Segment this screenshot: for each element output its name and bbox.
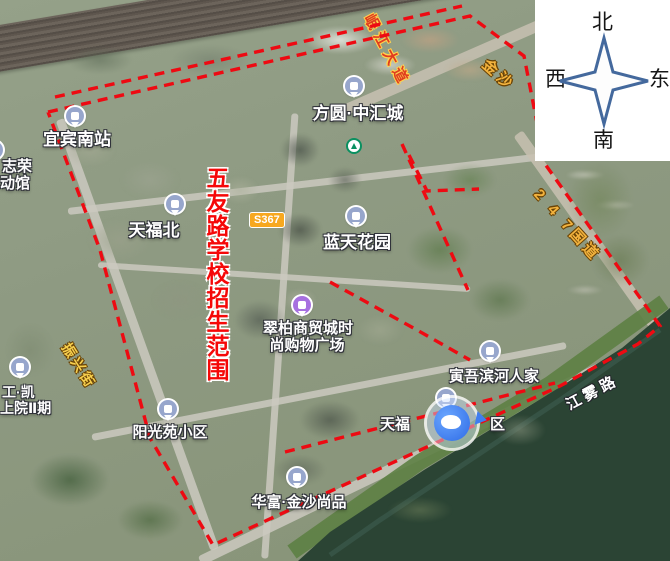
tianfubei-pin[interactable] (166, 195, 184, 213)
enrollment-zone-map: 宜宾南站 志荣 动馆 方圆·中汇城 天福北 S367 蓝天花园 翠柏商贸城时 尚… (0, 0, 670, 561)
compass: 北 南 西 东 (535, 0, 670, 161)
enrollment-boundary-line (409, 155, 479, 191)
poi-label-station: 宜宾南站 (43, 125, 111, 150)
poi-label-tianfu-left: 天福 (380, 413, 410, 434)
compass-star-icon (554, 31, 654, 131)
fangyuan-pin[interactable] (345, 77, 363, 95)
poi-label-fangyuan: 方圆·中汇城 (313, 99, 404, 124)
enrollment-boundary-line (402, 144, 468, 290)
lantian-pin[interactable] (347, 207, 365, 225)
metro-station-icon[interactable] (346, 138, 362, 154)
poi-label-cuibai-2: 尚购物广场 (269, 334, 344, 355)
enrollment-boundary-line (285, 383, 555, 452)
poi-label-partial-bottom-2: 上院Ⅱ期 (0, 398, 51, 418)
yangguang-pin[interactable] (159, 400, 177, 418)
tiangong-pin[interactable] (11, 358, 29, 376)
poi-label-partial-top-2: 动馆 (0, 172, 30, 193)
poi-label-lantian: 蓝天花园 (323, 228, 391, 253)
poi-label-tianfubei: 天福北 (129, 216, 180, 241)
poi-label-yinwu: 寅吾滨河人家 (449, 365, 539, 386)
huafu-pin[interactable] (288, 468, 306, 486)
yinwu-pin[interactable] (481, 342, 499, 360)
poi-label-tianfu-right: 区 (490, 413, 505, 434)
road-badge-s367: S367 (249, 212, 285, 228)
enrollment-boundary-line (55, 6, 462, 97)
shopping-mall-pin[interactable] (293, 296, 311, 314)
station-pin[interactable] (66, 107, 84, 125)
zone-title: 五友路学校招生范围 (196, 166, 236, 398)
current-location-icon[interactable] (427, 398, 477, 448)
poi-label-huafu: 华富·金沙尚品 (252, 491, 347, 512)
poi-label-yangguang: 阳光苑小区 (132, 421, 207, 442)
